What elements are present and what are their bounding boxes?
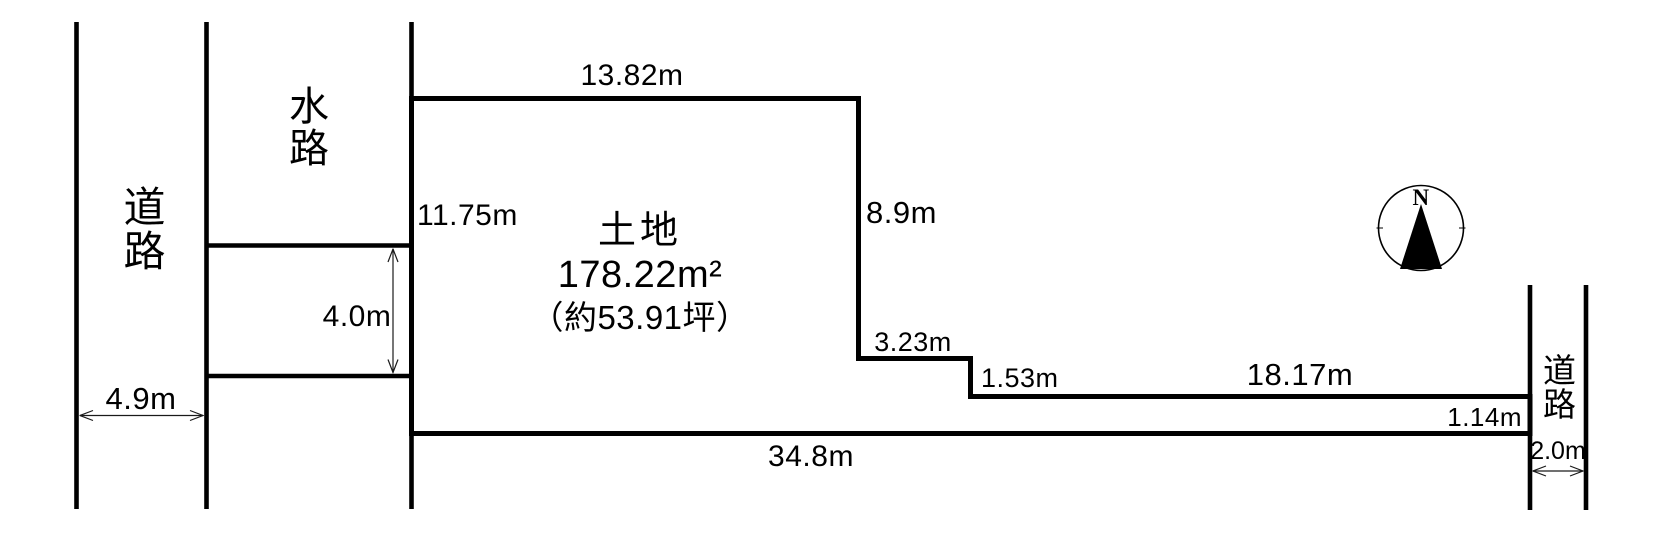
dim-waterway-strip-width: 4.0m [323, 302, 392, 332]
dim-north-edge: 13.82m [580, 61, 683, 91]
road-right-label: 道路 [1541, 353, 1574, 421]
dimension-arrows [80, 249, 1583, 471]
dim-step-vertical: 1.53m [981, 365, 1059, 392]
land-title-block: 土地 178.22m² （約53.91坪） [530, 212, 749, 334]
land-area-label: 178.22m² [530, 256, 749, 294]
dim-west-edge: 11.75m [417, 201, 518, 231]
compass-north-label: N [1412, 186, 1429, 209]
waterway-label: 水路 [285, 85, 325, 169]
dim-south-edge: 34.8m [768, 442, 854, 472]
dim-road-left-width: 4.9m [106, 383, 177, 414]
land-area-tsubo-label: （約53.91坪） [530, 301, 749, 334]
road-left-label: 道路 [120, 185, 162, 273]
dim-step-horizontal: 3.23m [874, 329, 952, 356]
site-plan: 道路 水路 道路 土地 178.22m² （約53.91坪） 13.82m 11… [0, 0, 1662, 533]
dim-road-right-width: 2.0m [1530, 439, 1586, 464]
land-name-label: 土地 [530, 212, 749, 250]
dim-southeast-edge: 18.17m [1247, 359, 1353, 390]
dim-east-road-frontage: 1.14m [1447, 404, 1522, 430]
dim-east-edge-upper: 8.9m [866, 197, 937, 228]
